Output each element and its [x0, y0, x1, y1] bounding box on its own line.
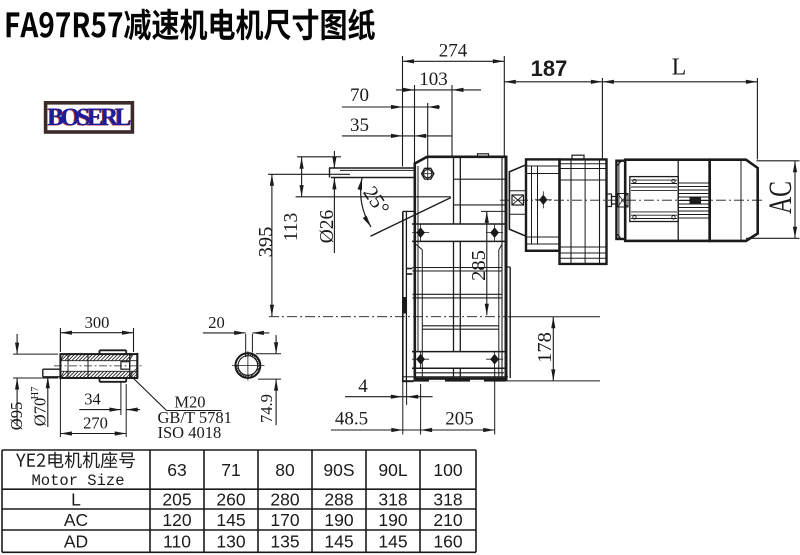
svg-text:318: 318 [378, 489, 407, 509]
svg-text:130: 130 [216, 532, 245, 552]
svg-text:70: 70 [350, 85, 369, 106]
svg-text:90L: 90L [378, 460, 407, 480]
svg-text:AC: AC [64, 510, 88, 530]
svg-text:160: 160 [433, 532, 462, 552]
svg-text:205: 205 [445, 409, 474, 430]
svg-text:71: 71 [221, 460, 240, 480]
svg-text:BOSERL: BOSERL [48, 104, 132, 131]
svg-text:145: 145 [324, 532, 353, 552]
svg-text:90S: 90S [323, 460, 354, 480]
svg-text:318: 318 [433, 489, 462, 509]
svg-text:74.9: 74.9 [257, 394, 276, 423]
svg-text:4: 4 [358, 376, 368, 397]
svg-text:274: 274 [439, 41, 468, 62]
svg-text:ISO 4018: ISO 4018 [158, 423, 222, 442]
svg-text:Motor Size: Motor Size [31, 472, 124, 490]
svg-text:288: 288 [324, 489, 353, 509]
svg-text:L: L [71, 489, 81, 509]
svg-text:170: 170 [270, 510, 299, 530]
svg-text:190: 190 [378, 510, 407, 530]
svg-text:34: 34 [84, 390, 101, 409]
svg-text:100: 100 [433, 460, 462, 480]
svg-text:187: 187 [531, 56, 568, 81]
svg-text:80: 80 [275, 460, 295, 480]
svg-text:210: 210 [433, 510, 462, 530]
svg-text:Ø70: Ø70 [31, 398, 50, 426]
svg-text:260: 260 [216, 489, 245, 509]
svg-text:178: 178 [534, 332, 556, 363]
svg-text:Ø26: Ø26 [317, 209, 338, 243]
svg-text:190: 190 [324, 510, 353, 530]
svg-text:L: L [672, 55, 687, 81]
svg-text:110: 110 [163, 532, 191, 552]
svg-text:48.5: 48.5 [335, 409, 368, 430]
svg-text:120: 120 [162, 510, 191, 530]
svg-text:113: 113 [281, 213, 302, 242]
svg-text:Ø95: Ø95 [7, 402, 26, 430]
svg-text:35: 35 [350, 115, 369, 136]
svg-text:270: 270 [83, 414, 108, 433]
svg-text:25°: 25° [358, 182, 394, 220]
svg-text:145: 145 [378, 532, 407, 552]
svg-text:145: 145 [216, 510, 245, 530]
svg-text:395: 395 [255, 227, 277, 258]
svg-text:285: 285 [468, 250, 490, 281]
svg-text:AD: AD [64, 532, 88, 552]
svg-text:103: 103 [419, 69, 448, 90]
svg-text:AC: AC [762, 181, 799, 214]
svg-text:20: 20 [208, 313, 225, 332]
svg-text:135: 135 [270, 532, 299, 552]
svg-text:205: 205 [162, 489, 191, 509]
svg-text:280: 280 [270, 489, 299, 509]
svg-text:300: 300 [85, 313, 110, 332]
svg-text:63: 63 [167, 460, 186, 480]
svg-text:H7: H7 [30, 387, 41, 400]
